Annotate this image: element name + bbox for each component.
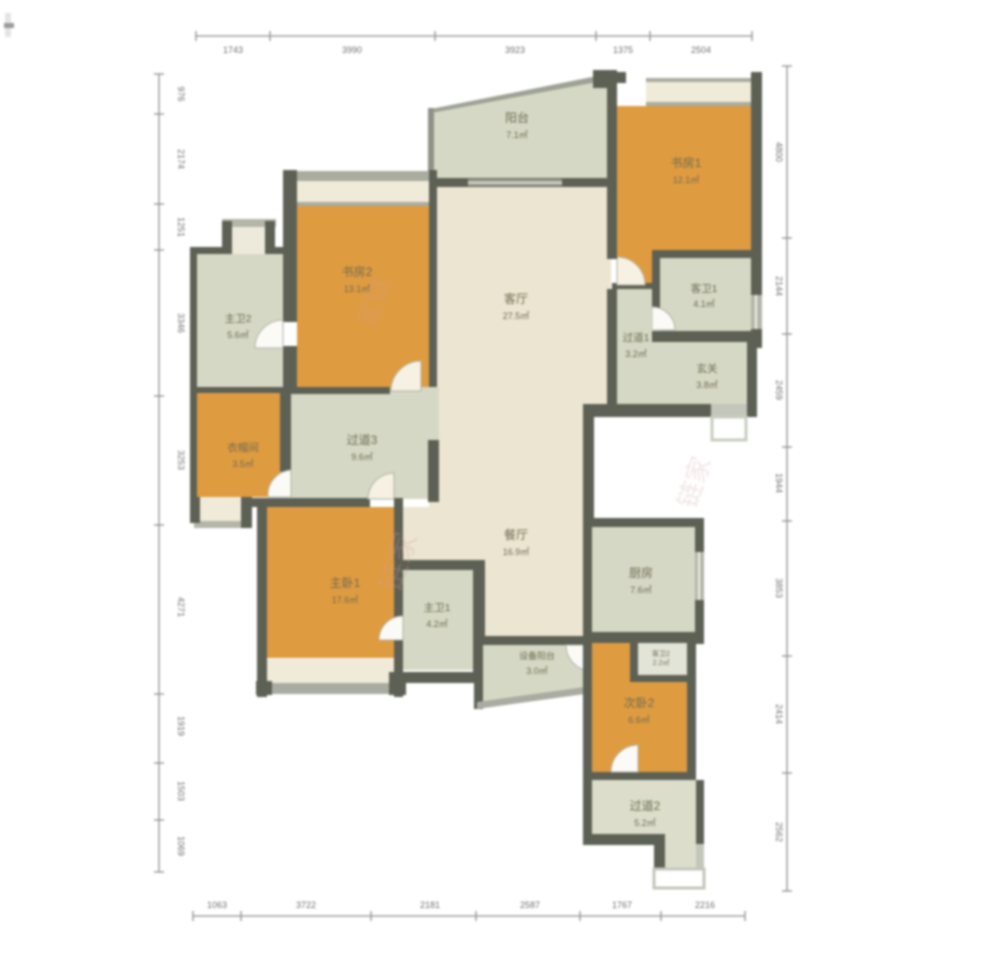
svg-text:3.8㎡: 3.8㎡ [696, 380, 718, 390]
svg-text:玄关: 玄关 [697, 362, 718, 375]
svg-text:设备阳台: 设备阳台 [519, 650, 555, 661]
svg-text:3346: 3346 [176, 313, 186, 333]
svg-text:5.6㎡: 5.6㎡ [227, 330, 249, 340]
svg-text:976: 976 [176, 86, 186, 101]
svg-text:2216: 2216 [695, 900, 715, 910]
svg-text:3923: 3923 [505, 45, 525, 55]
svg-text:7.6㎡: 7.6㎡ [630, 585, 652, 595]
svg-text:1503: 1503 [176, 781, 186, 801]
svg-text:1063: 1063 [207, 900, 227, 910]
svg-text:客卫2: 客卫2 [652, 649, 670, 658]
svg-text:16.9㎡: 16.9㎡ [503, 547, 530, 557]
svg-text:过道2: 过道2 [630, 799, 661, 813]
svg-text:阳台: 阳台 [505, 110, 529, 125]
svg-text:2587: 2587 [520, 900, 540, 910]
svg-text:3.5㎡: 3.5㎡ [232, 459, 254, 469]
svg-text:1251: 1251 [176, 217, 186, 237]
svg-text:2414: 2414 [774, 704, 784, 724]
svg-text:1944: 1944 [774, 473, 784, 493]
svg-text:1375: 1375 [613, 45, 633, 55]
svg-text:1767: 1767 [612, 900, 632, 910]
svg-text:书房1: 书房1 [671, 155, 702, 170]
svg-text:衣帽间: 衣帽间 [227, 441, 259, 454]
svg-text:2459: 2459 [774, 380, 784, 400]
svg-text:4800: 4800 [774, 142, 784, 162]
svg-text:27.5㎡: 27.5㎡ [503, 311, 530, 321]
svg-text:2181: 2181 [420, 900, 440, 910]
svg-text:7.1㎡: 7.1㎡ [506, 130, 528, 140]
svg-text:3722: 3722 [296, 900, 316, 910]
svg-text:主卧1: 主卧1 [330, 576, 361, 590]
svg-text:1919: 1919 [176, 716, 186, 736]
svg-text:6.6㎡: 6.6㎡ [628, 715, 650, 725]
svg-text:3.0㎡: 3.0㎡ [526, 666, 548, 676]
svg-text:12.1㎡: 12.1㎡ [673, 175, 700, 185]
svg-text:餐厅: 餐厅 [504, 527, 528, 542]
svg-text:客卫1: 客卫1 [691, 282, 718, 295]
svg-text:2174: 2174 [176, 149, 186, 169]
svg-text:2144: 2144 [774, 276, 784, 296]
svg-text:3253: 3253 [176, 450, 186, 470]
svg-text:1743: 1743 [223, 45, 243, 55]
svg-text:3.2㎡: 3.2㎡ [625, 349, 647, 359]
svg-text:过道3: 过道3 [347, 433, 378, 447]
svg-text:2.2㎡: 2.2㎡ [653, 659, 670, 667]
svg-text:过道1: 过道1 [623, 331, 650, 344]
svg-text:3853: 3853 [774, 578, 784, 598]
svg-text:4.2㎡: 4.2㎡ [426, 619, 448, 629]
svg-text:5.2㎡: 5.2㎡ [634, 818, 656, 828]
svg-text:4.1㎡: 4.1㎡ [693, 299, 715, 309]
svg-text:3990: 3990 [342, 45, 362, 55]
svg-text:主卫2: 主卫2 [225, 313, 252, 325]
svg-text:厨房: 厨房 [629, 565, 653, 580]
svg-text:17.6㎡: 17.6㎡ [332, 595, 359, 605]
svg-text:1069: 1069 [176, 836, 186, 856]
svg-text:9.6㎡: 9.6㎡ [351, 452, 373, 462]
svg-text:客厅: 客厅 [504, 291, 528, 306]
svg-text:次卧2: 次卧2 [624, 696, 655, 710]
svg-text:主卫1: 主卫1 [424, 602, 451, 614]
svg-text:4271: 4271 [176, 597, 186, 617]
svg-text:2504: 2504 [691, 45, 711, 55]
svg-text:2562: 2562 [774, 822, 784, 842]
